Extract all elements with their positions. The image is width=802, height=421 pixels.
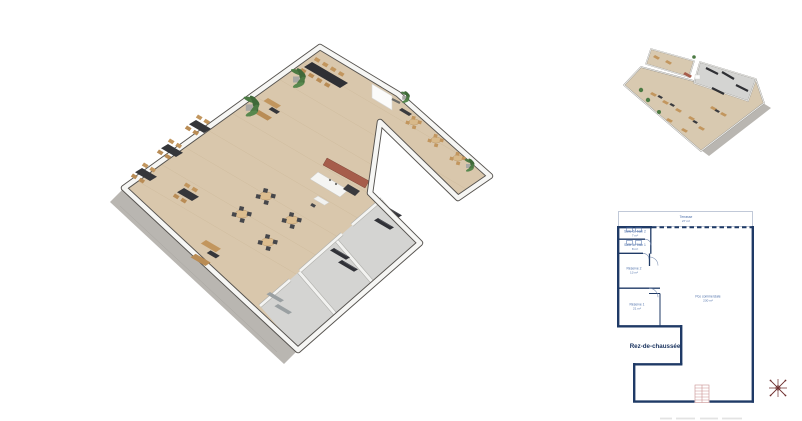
floorplan-2d[interactable]: Terrasse 27 m² [608,202,802,421]
thumb-building [624,49,771,156]
staircase [695,385,709,403]
interior-walls-2d [618,226,660,326]
outer-walls-2d [617,226,754,403]
room-area: 27 m² [682,219,690,223]
room-area: 8 m² [632,247,638,251]
thumbnail-3d-floorplan[interactable] [608,38,792,172]
floor-title: Rez-de-chaussée [630,343,681,350]
screenshot-canvas: Terrasse 27 m² [0,0,802,421]
compass-rose-icon [769,379,787,397]
room-area: 7 m² [632,233,638,237]
room-area: 21 m² [633,307,641,311]
room-area: 230 m² [703,299,713,303]
room-area: 13 m² [630,271,638,275]
main-3d-floorplan[interactable] [70,0,500,421]
